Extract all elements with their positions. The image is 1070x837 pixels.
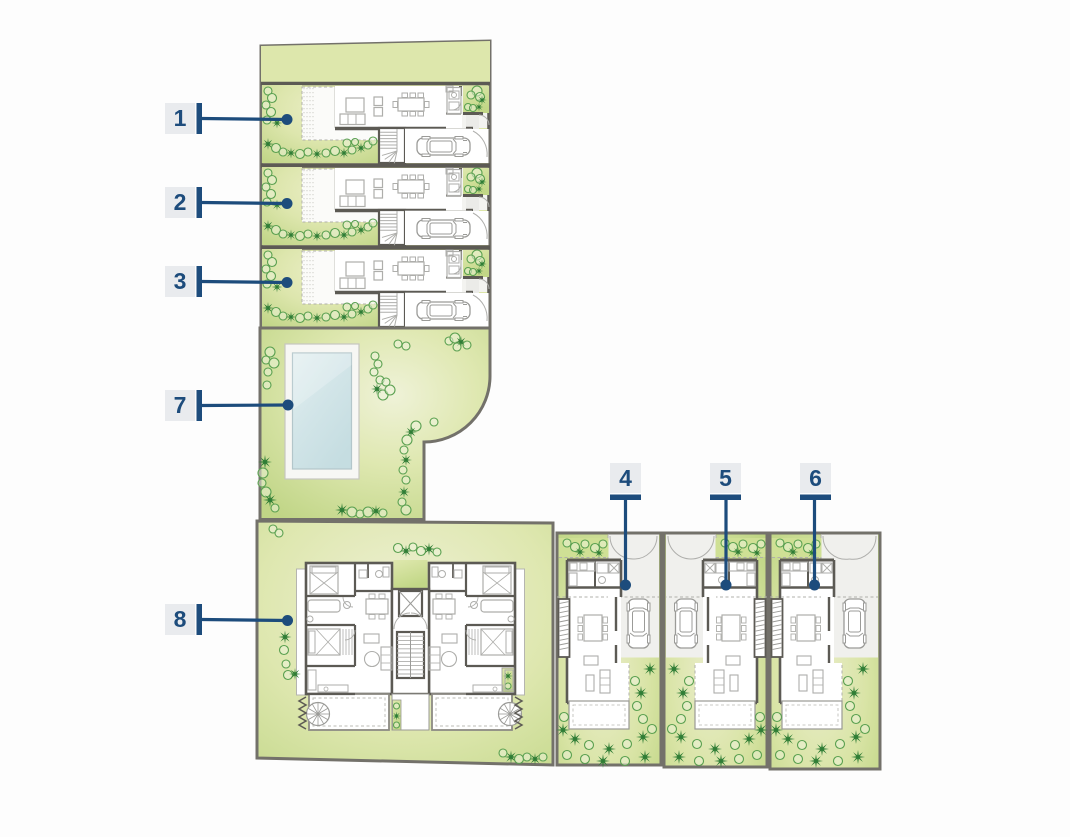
- svg-text:4: 4: [619, 465, 632, 491]
- svg-text:2: 2: [174, 189, 187, 215]
- svg-text:8: 8: [174, 606, 187, 632]
- svg-text:3: 3: [174, 268, 187, 294]
- svg-text:1: 1: [174, 105, 187, 131]
- svg-text:5: 5: [719, 465, 732, 491]
- svg-text:7: 7: [174, 392, 187, 418]
- svg-text:6: 6: [809, 465, 822, 491]
